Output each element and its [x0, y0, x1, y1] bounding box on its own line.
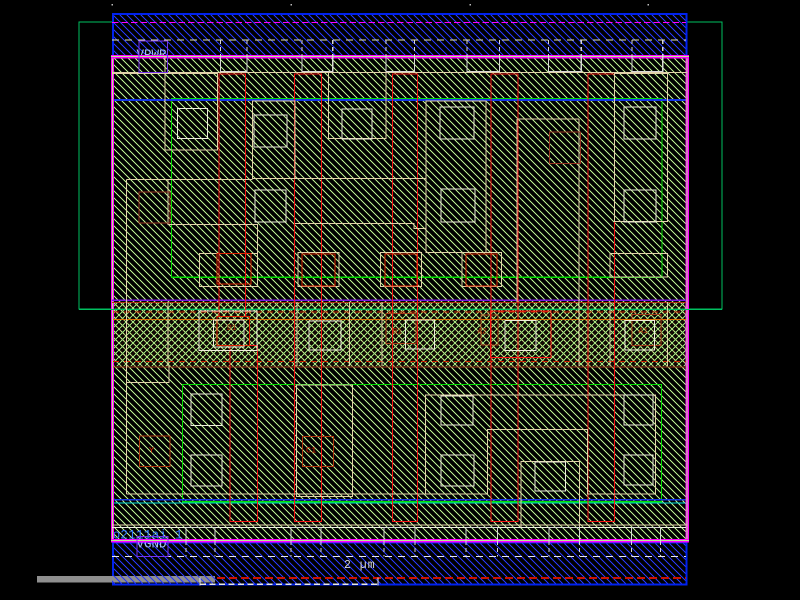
svg-text:C1: C1 [306, 446, 316, 456]
svg-text:2 µm: 2 µm [344, 559, 376, 572]
svg-text:Y: Y [149, 446, 154, 456]
svg-text:B1: B1 [393, 328, 403, 337]
svg-text:A1: A1 [639, 327, 649, 336]
svg-text:VPWR: VPWR [137, 48, 168, 62]
svg-text:D1: D1 [227, 324, 237, 333]
svg-text:A2: A2 [478, 328, 488, 337]
